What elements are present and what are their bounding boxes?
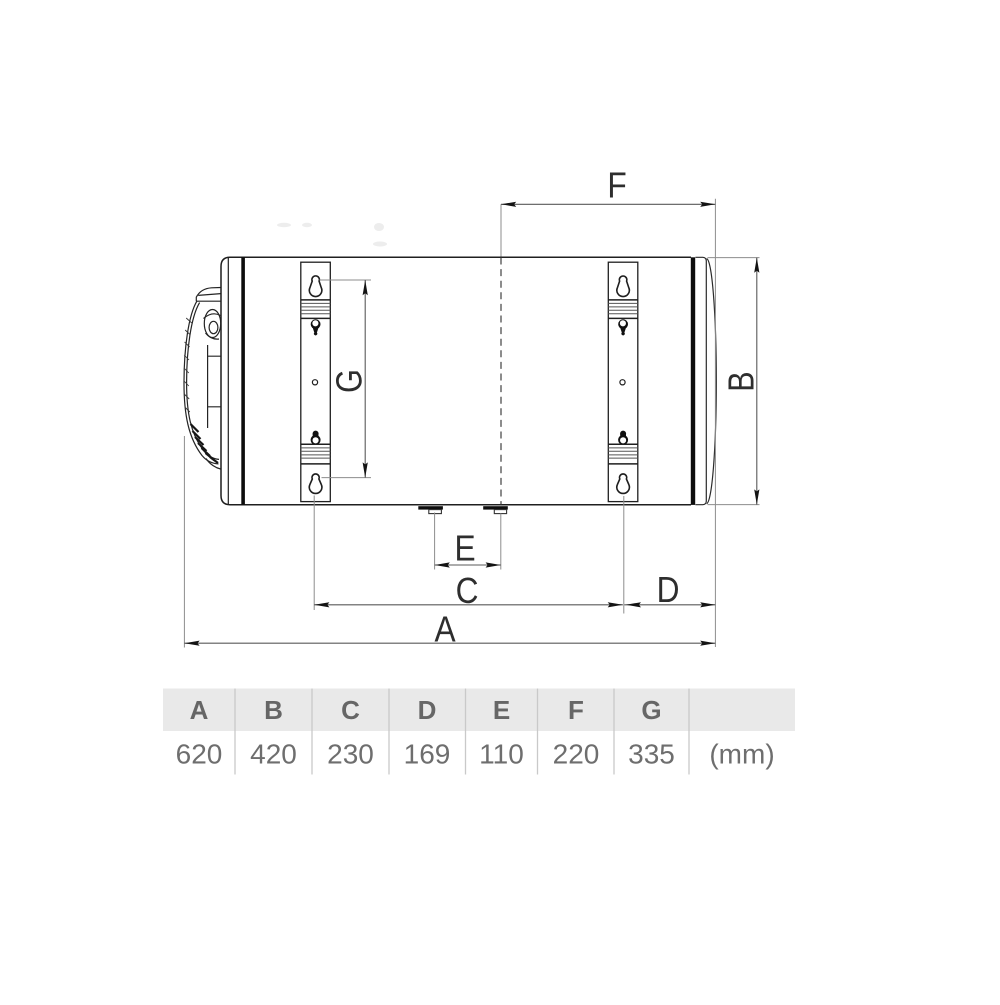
svg-text:220: 220 xyxy=(553,739,600,770)
svg-text:620: 620 xyxy=(176,739,223,770)
svg-text:110: 110 xyxy=(479,739,524,770)
svg-text:D: D xyxy=(657,570,680,610)
svg-text:B: B xyxy=(264,695,283,725)
svg-text:C: C xyxy=(456,571,479,611)
svg-text:G: G xyxy=(641,695,661,725)
svg-text:G: G xyxy=(330,369,370,393)
svg-text:A: A xyxy=(190,695,209,725)
svg-text:E: E xyxy=(454,529,475,569)
svg-text:D: D xyxy=(418,695,437,725)
svg-text:335: 335 xyxy=(628,739,675,770)
svg-text:E: E xyxy=(493,695,510,725)
svg-text:F: F xyxy=(568,695,584,725)
svg-text:(mm): (mm) xyxy=(709,739,774,770)
svg-text:A: A xyxy=(434,610,455,650)
svg-text:230: 230 xyxy=(327,739,374,770)
svg-text:B: B xyxy=(722,371,762,391)
svg-text:169: 169 xyxy=(404,739,451,770)
svg-text:420: 420 xyxy=(250,739,297,770)
svg-text:F: F xyxy=(607,166,626,206)
svg-text:C: C xyxy=(341,695,360,725)
